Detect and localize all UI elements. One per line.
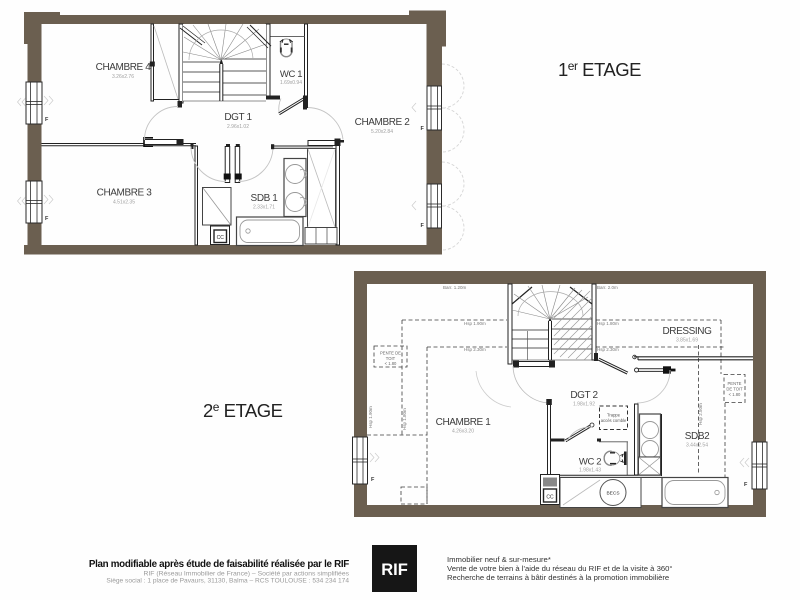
svg-text:PENTE DE: PENTE DE xyxy=(380,351,401,356)
svg-text:< 1.80: < 1.80 xyxy=(385,361,397,366)
svg-text:CC: CC xyxy=(217,235,225,241)
svg-text:Trappe: Trappe xyxy=(607,413,621,418)
svg-text:CHAMBRE 4: CHAMBRE 4 xyxy=(96,62,152,73)
svg-text:CC: CC xyxy=(546,494,554,500)
svg-text:RIF: RIF xyxy=(381,561,408,579)
svg-text:Siège social : 1 place de Pava: Siège social : 1 place de Pavaurs, 31130… xyxy=(106,578,349,585)
svg-text:Hsp 2.30m: Hsp 2.30m xyxy=(464,347,486,352)
svg-text:2.96x1.02: 2.96x1.02 xyxy=(227,124,249,130)
svg-text:< 1.80: < 1.80 xyxy=(729,392,741,397)
svg-text:Hsp 1.90m: Hsp 1.90m xyxy=(464,321,486,326)
svg-text:WC 2: WC 2 xyxy=(579,457,601,468)
svg-text:DE TOIT: DE TOIT xyxy=(726,387,743,392)
svg-text:BECS: BECS xyxy=(606,491,619,497)
svg-text:SDB 1: SDB 1 xyxy=(251,193,279,204)
svg-text:accès comble: accès comble xyxy=(601,418,627,423)
svg-text:Plan modifiable après étude de: Plan modifiable après étude de faisabili… xyxy=(89,559,349,570)
svg-text:Hsp 2.50m: Hsp 2.50m xyxy=(698,403,703,425)
svg-text:WC 1: WC 1 xyxy=(280,69,302,80)
svg-text:DGT 1: DGT 1 xyxy=(224,112,252,123)
svg-text:Immobilier neuf & sur-mesure*: Immobilier neuf & sur-mesure* xyxy=(447,555,551,564)
svg-text:4.26x3.20: 4.26x3.20 xyxy=(452,429,474,435)
svg-text:3.44x2.54: 3.44x2.54 xyxy=(686,443,708,449)
svg-text:Hsp 1.90m: Hsp 1.90m xyxy=(368,406,373,428)
svg-text:Barr. 2.0m: Barr. 2.0m xyxy=(597,285,618,290)
svg-text:3.26x2.76: 3.26x2.76 xyxy=(112,74,134,80)
svg-text:CHAMBRE 3: CHAMBRE 3 xyxy=(97,188,153,199)
svg-text:RIF (Réseau Immobilier de Fran: RIF (Réseau Immobilier de France) – Soci… xyxy=(144,571,350,578)
svg-text:PENTE: PENTE xyxy=(728,381,742,386)
svg-text:Hsp 1.80m: Hsp 1.80m xyxy=(597,321,619,326)
svg-text:1.98x1.92: 1.98x1.92 xyxy=(573,402,595,408)
svg-text:2.33x1.71: 2.33x1.71 xyxy=(253,205,275,211)
svg-text:CHAMBRE 1: CHAMBRE 1 xyxy=(436,417,492,428)
svg-text:Hsp 2.30m: Hsp 2.30m xyxy=(597,347,619,352)
svg-text:Recherche de terrains à bâtir: Recherche de terrains à bâtir destinés à… xyxy=(447,573,669,582)
svg-text:5.20x2.84: 5.20x2.84 xyxy=(371,129,393,135)
svg-text:Hsp 1.80m: Hsp 1.80m xyxy=(402,408,407,430)
svg-text:Barr. 1.20m: Barr. 1.20m xyxy=(443,285,467,290)
svg-text:DGT 2: DGT 2 xyxy=(570,390,598,401)
svg-text:CHAMBRE 2: CHAMBRE 2 xyxy=(355,117,411,128)
svg-text:4.51x2.35: 4.51x2.35 xyxy=(113,200,135,206)
svg-text:DRESSING: DRESSING xyxy=(662,326,712,337)
svg-text:SDB2: SDB2 xyxy=(685,431,710,442)
svg-text:Vente de votre bien à l'aide d: Vente de votre bien à l'aide du réseau d… xyxy=(447,564,673,573)
svg-text:3.85x1.69: 3.85x1.69 xyxy=(676,338,698,344)
svg-text:1.98x1.43: 1.98x1.43 xyxy=(579,468,601,474)
svg-text:1.69x0.94: 1.69x0.94 xyxy=(280,80,302,86)
